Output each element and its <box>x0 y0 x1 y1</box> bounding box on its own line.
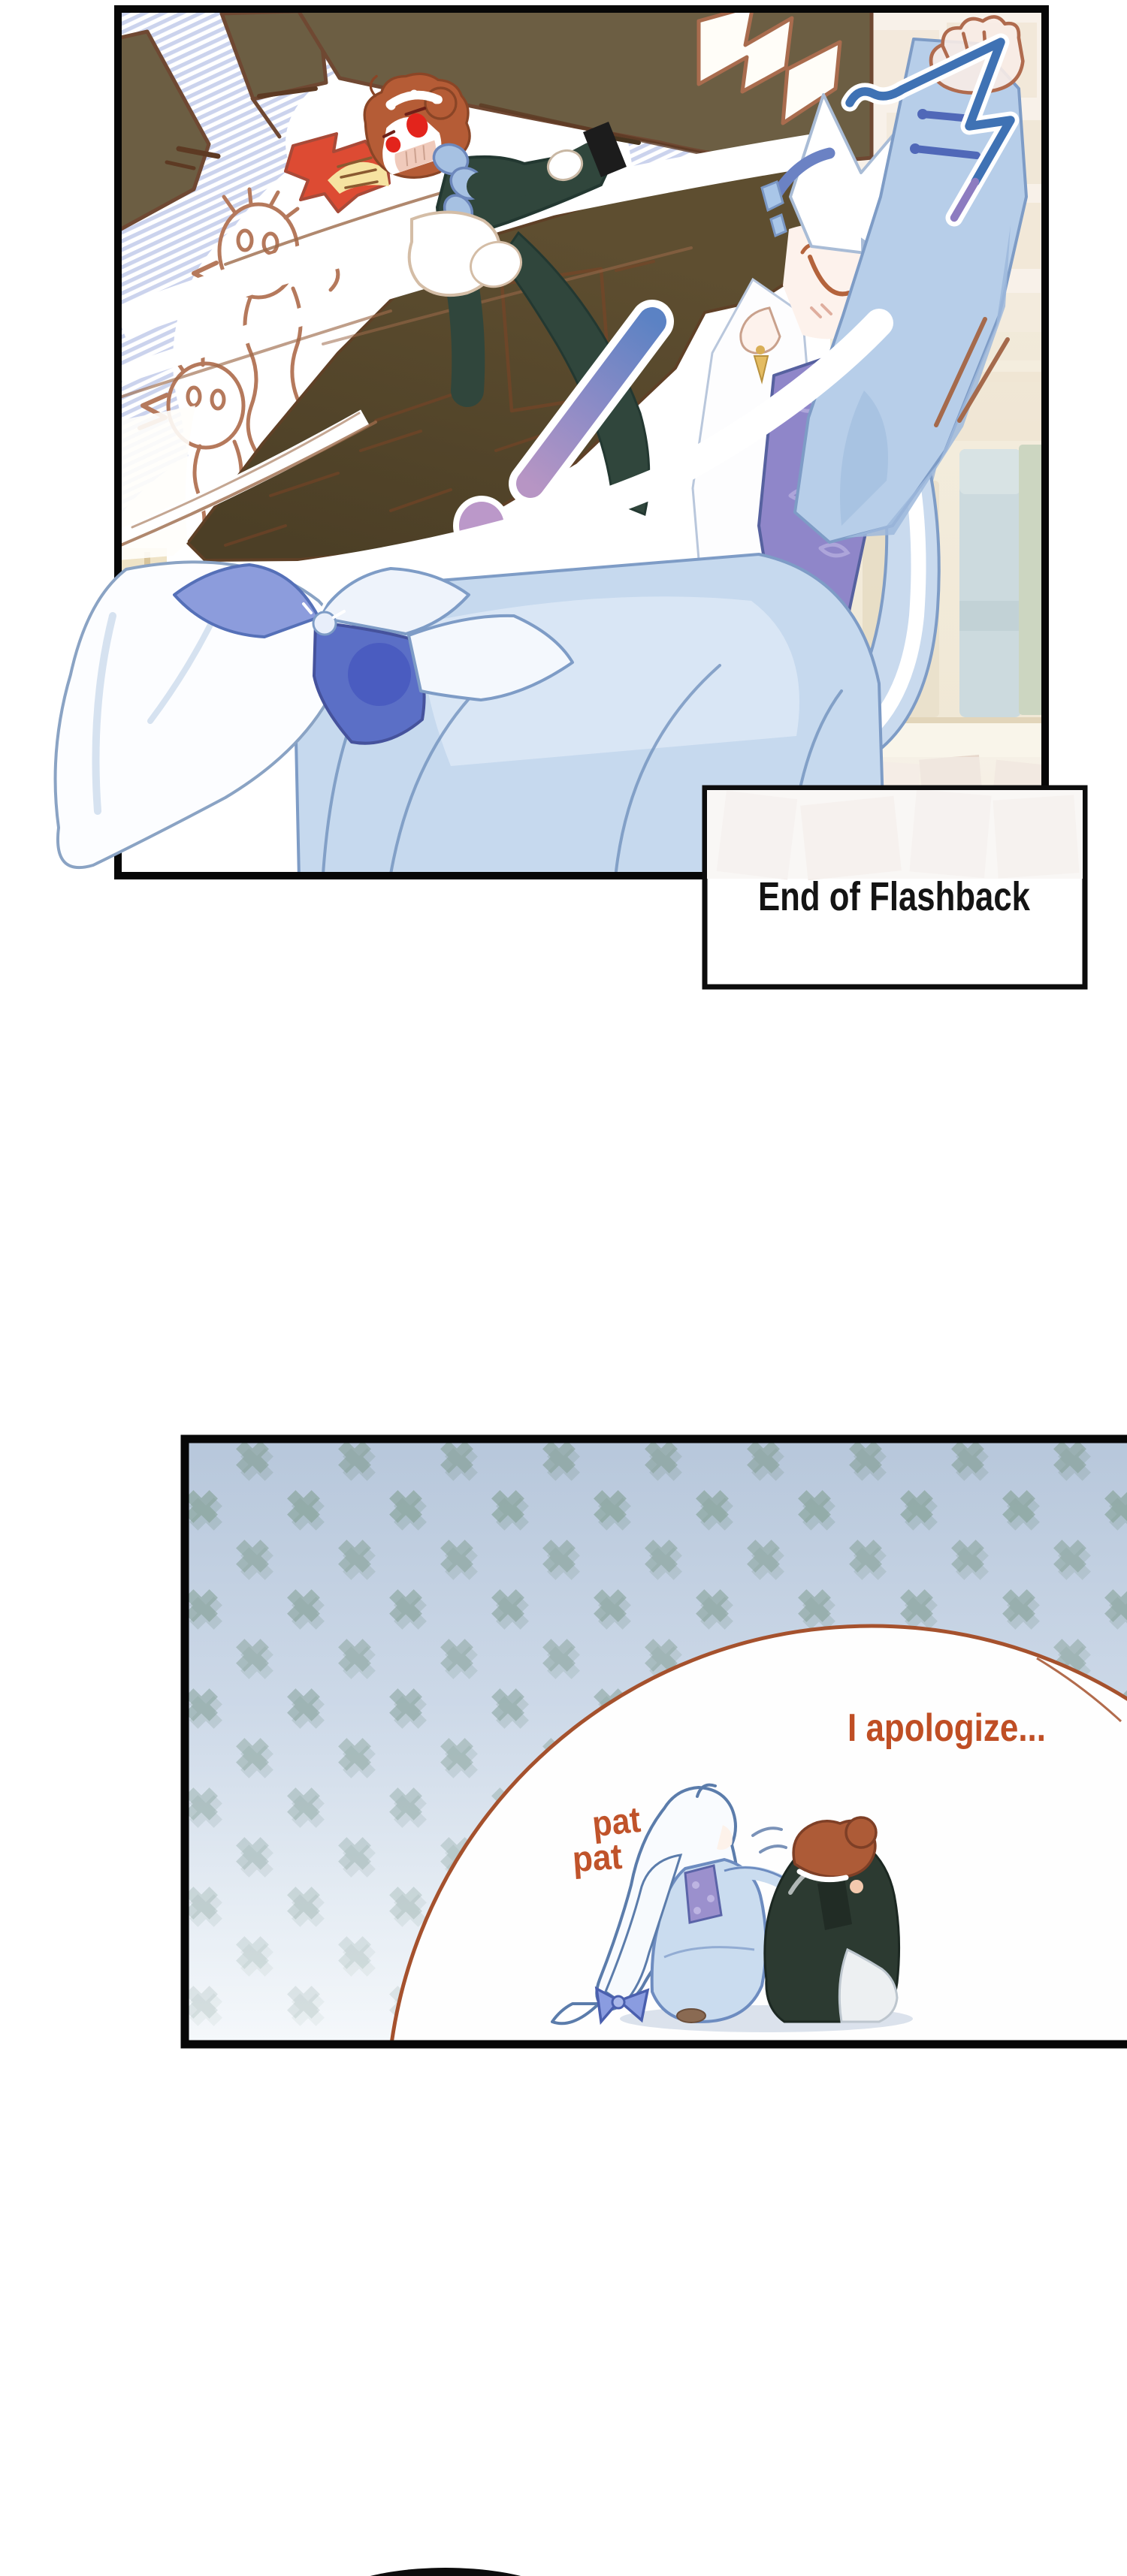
svg-text:pat: pat <box>571 1837 624 1880</box>
svg-text:I apologize...: I apologize... <box>848 1706 1046 1750</box>
svg-text:End of Flashback: End of Flashback <box>758 874 1031 919</box>
